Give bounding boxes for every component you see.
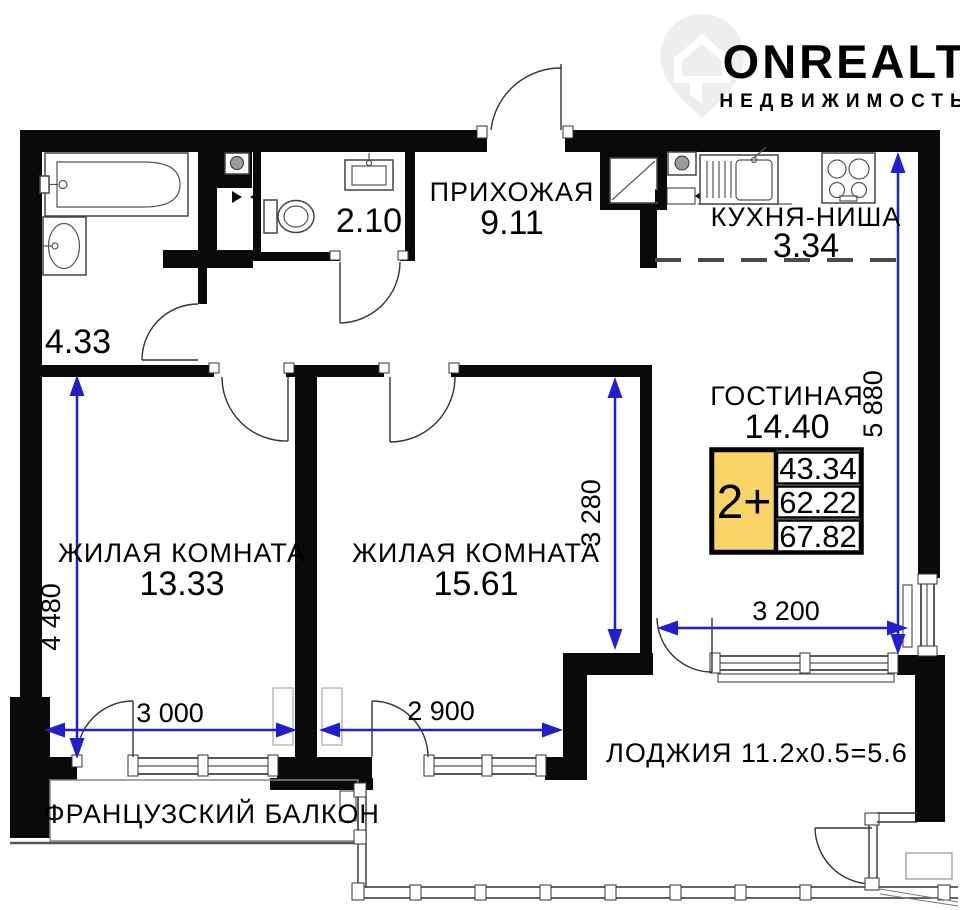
dim-bottom-middle: 2 900 [407, 696, 475, 726]
french-balcony-label: ФРАНЦУЗСКИЙ БАЛКОН [44, 798, 380, 829]
kitchen-sink-unit [700, 155, 778, 204]
wc-door-arc [340, 262, 400, 323]
apartment-info-box: 2+ 43.34 62.22 67.82 [711, 449, 862, 554]
bedroom-middle-name: ЖИЛАЯ КОМНАТА [352, 538, 600, 568]
kitchen-area: 3.34 [773, 227, 839, 265]
dim-loggia: 3 200 [752, 596, 820, 626]
loggia-label: ЛОДЖИЯ 11.2x0.5=5.6 [606, 738, 908, 768]
living-room-area: 14.40 [744, 408, 829, 446]
bedroom-left-area: 13.33 [139, 565, 224, 603]
bedroom-middle-door-arc [390, 377, 455, 442]
floor-plan: ONREALT НЕДВИЖИМОСТЬ [0, 0, 960, 910]
dim-left-vertical: 4 480 [36, 583, 66, 651]
watermark: ONREALT НЕДВИЖИМОСТЬ [660, 14, 960, 118]
toilet-tank [264, 200, 277, 233]
loggia-partition-door-arc [815, 828, 870, 884]
bathroom-door-arc [142, 304, 198, 360]
info-value-1: 43.34 [779, 451, 857, 486]
info-value-2: 62.22 [779, 485, 857, 520]
bedroom-left-door-arc [222, 377, 288, 441]
dim-bottom-left: 3 000 [136, 698, 204, 728]
info-value-3: 67.82 [779, 519, 857, 554]
wc-area: 2.10 [336, 202, 402, 240]
hallway-name: ПРИХОЖАЯ [430, 177, 595, 207]
hallway-area: 9.11 [480, 204, 544, 242]
bedroom-middle-area: 15.61 [433, 565, 518, 603]
watermark-subtitle: НЕДВИЖИМОСТЬ [719, 91, 960, 112]
loggia-glazing [340, 783, 958, 906]
entrance-door-arc [491, 68, 561, 130]
living-room-name: ГОСТИНАЯ [710, 381, 864, 411]
floor-plan-canvas: ONREALT НЕДВИЖИМОСТЬ [0, 0, 960, 910]
rooms-badge: 2+ [717, 476, 772, 529]
dim-middle-vertical: 3 280 [576, 479, 606, 547]
bedroom-left-name: ЖИЛАЯ КОМНАТА [58, 538, 306, 568]
corridor-area: 4.33 [45, 323, 111, 361]
watermark-brand: ONREALT [723, 35, 960, 88]
